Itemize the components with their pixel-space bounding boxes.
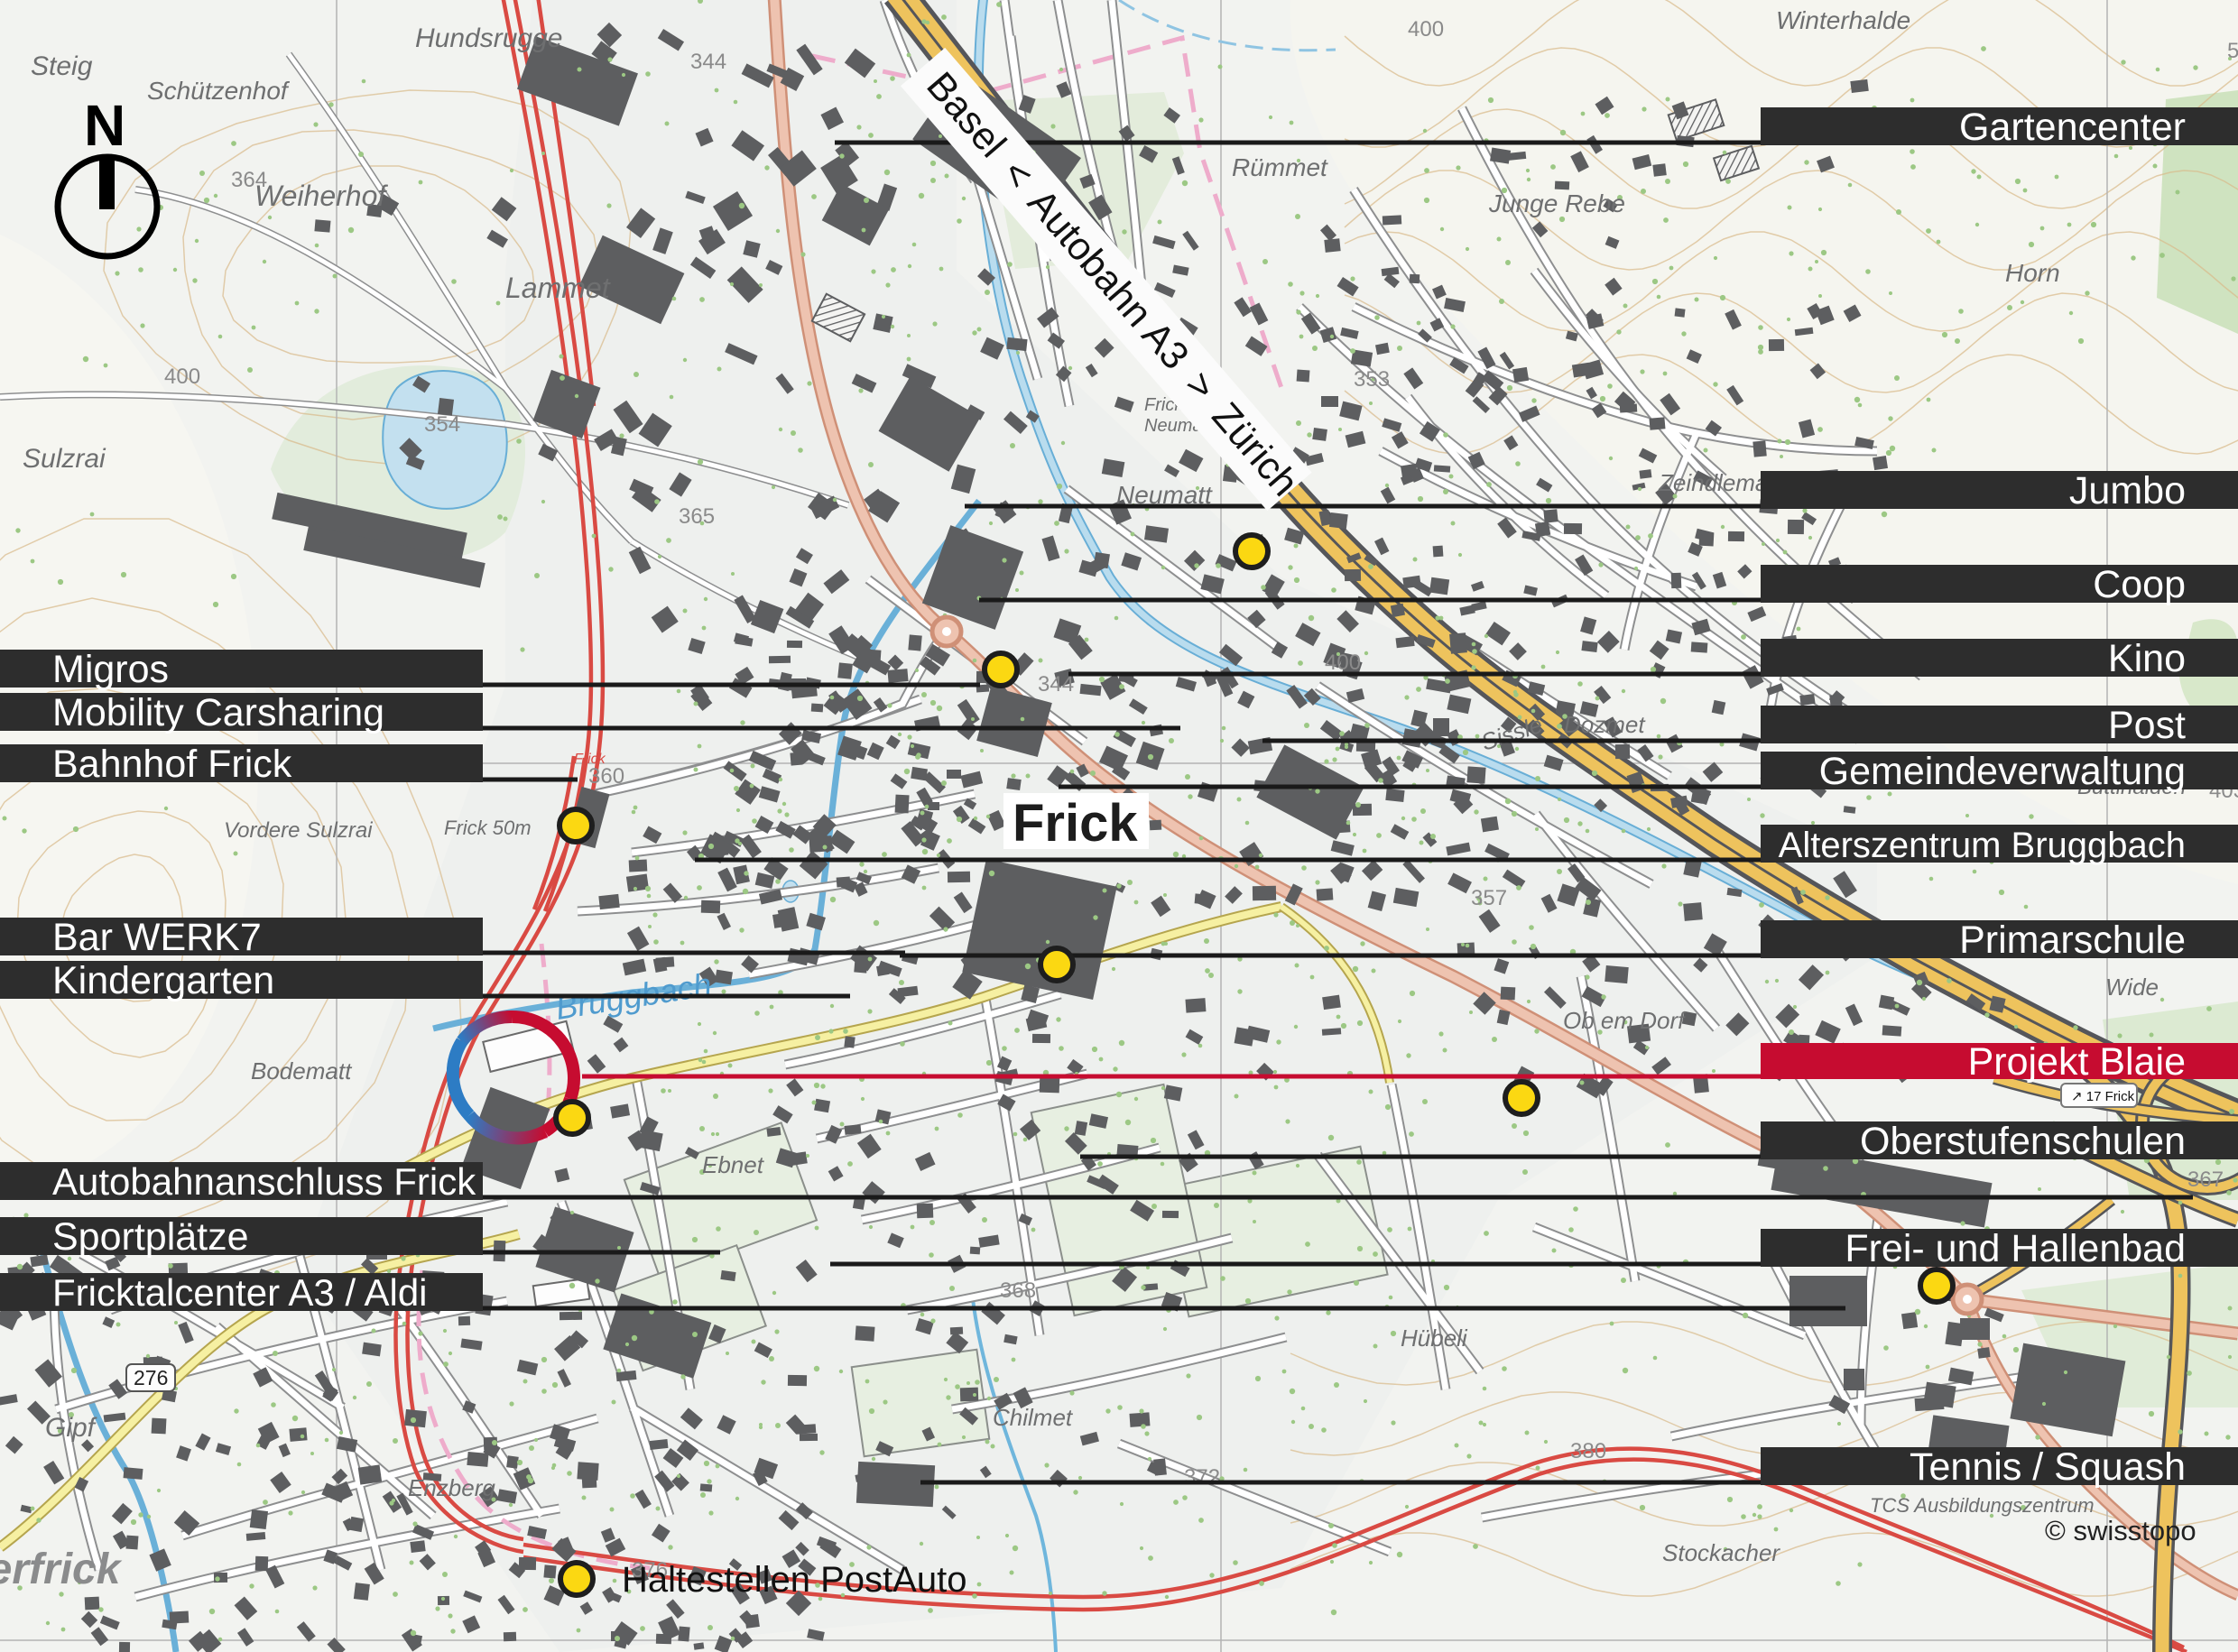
svg-text:Junge Rebe: Junge Rebe: [1488, 189, 1625, 217]
svg-text:Steig: Steig: [31, 51, 93, 81]
svg-text:Schützenhof: Schützenhof: [147, 77, 291, 105]
svg-text:Hübeli: Hübeli: [1401, 1324, 1468, 1352]
svg-text:Weiherhof: Weiherhof: [254, 180, 388, 212]
svg-text:Projekt Blaie: Projekt Blaie: [1968, 1040, 2186, 1084]
svg-text:372: 372: [1184, 1465, 1220, 1490]
svg-text:Ob em Dorf: Ob em Dorf: [1563, 1007, 1687, 1034]
svg-text:Bodematt: Bodematt: [251, 1057, 353, 1084]
svg-text:353: 353: [1354, 367, 1390, 392]
svg-text:Sulzrai: Sulzrai: [23, 444, 106, 474]
svg-text:Frick 50m: Frick 50m: [444, 817, 532, 839]
svg-text:Ebnet: Ebnet: [702, 1151, 765, 1178]
svg-text:Frei- und Hallenbad: Frei- und Hallenbad: [1845, 1227, 2186, 1270]
svg-text:400: 400: [1408, 17, 1444, 42]
svg-text:Oberstufenschulen: Oberstufenschulen: [1860, 1120, 2186, 1163]
svg-text:Bar WERK7: Bar WERK7: [52, 916, 262, 959]
svg-text:Dozmet: Dozmet: [1564, 711, 1646, 738]
svg-text:Lammet: Lammet: [505, 272, 611, 304]
svg-text:500: 500: [2227, 39, 2238, 63]
svg-text:Chilmet: Chilmet: [993, 1404, 1074, 1431]
svg-text:344: 344: [690, 50, 726, 74]
svg-text:Sportplätze: Sportplätze: [52, 1215, 249, 1259]
svg-text:Oberfrick: Oberfrick: [0, 1546, 123, 1593]
svg-text:Kindergarten: Kindergarten: [52, 959, 274, 1002]
svg-text:Coop: Coop: [2093, 563, 2186, 606]
svg-text:380: 380: [1570, 1439, 1606, 1463]
svg-text:276: 276: [134, 1366, 168, 1389]
svg-text:Wide: Wide: [2105, 974, 2159, 1001]
svg-text:364: 364: [231, 168, 267, 192]
svg-text:400: 400: [1325, 651, 1361, 675]
svg-text:Autobahnanschluss Frick: Autobahnanschluss Frick: [52, 1160, 476, 1203]
svg-text:TCS Ausbildungszentrum: TCS Ausbildungszentrum: [1870, 1494, 2095, 1517]
svg-text:Gipf: Gipf: [45, 1413, 97, 1443]
svg-text:367: 367: [2187, 1167, 2224, 1192]
svg-text:Primarschule: Primarschule: [1959, 918, 2186, 962]
svg-text:Winterhalde: Winterhalde: [1776, 6, 1910, 34]
svg-text:Tennis / Squash: Tennis / Squash: [1910, 1445, 2186, 1489]
svg-text:Post: Post: [2108, 704, 2186, 747]
svg-text:N: N: [84, 93, 125, 158]
svg-text:Rümmet: Rümmet: [1232, 153, 1328, 181]
svg-text:368: 368: [1000, 1278, 1036, 1303]
svg-text:© swisstopo: © swisstopo: [2045, 1515, 2196, 1546]
svg-text:354: 354: [424, 412, 460, 437]
svg-text:Kino: Kino: [2108, 637, 2186, 680]
svg-text:Bahnhof Frick: Bahnhof Frick: [52, 743, 292, 786]
svg-text:400: 400: [164, 365, 200, 389]
svg-text:Vordere Sulzrai: Vordere Sulzrai: [224, 818, 373, 843]
svg-text:357: 357: [1471, 886, 1507, 910]
svg-text:Gartencenter: Gartencenter: [1959, 106, 2186, 149]
svg-text:Stockacher: Stockacher: [1662, 1539, 1780, 1566]
svg-text:Jumbo: Jumbo: [2069, 469, 2186, 512]
svg-text:365: 365: [679, 504, 715, 529]
svg-text:360: 360: [588, 764, 624, 789]
svg-text:Gemeindeverwaltung: Gemeindeverwaltung: [1819, 750, 2186, 793]
svg-text:Alterszentrum Bruggbach: Alterszentrum Bruggbach: [1779, 826, 2186, 865]
svg-text:Mobility Carsharing: Mobility Carsharing: [52, 691, 384, 734]
svg-text:Fricktalcenter A3 / Aldi: Fricktalcenter A3 / Aldi: [52, 1271, 428, 1314]
svg-text:Horn: Horn: [2005, 259, 2060, 287]
svg-text:Frick: Frick: [1013, 794, 1138, 853]
svg-text:Haltestellen PostAuto: Haltestellen PostAuto: [622, 1560, 966, 1600]
svg-text:↗ 17 Frick: ↗ 17 Frick: [2071, 1089, 2135, 1104]
svg-text:Migros: Migros: [52, 648, 169, 691]
svg-text:Enzberg: Enzberg: [408, 1474, 495, 1501]
svg-text:Hundsrugge: Hundsrugge: [415, 23, 562, 53]
